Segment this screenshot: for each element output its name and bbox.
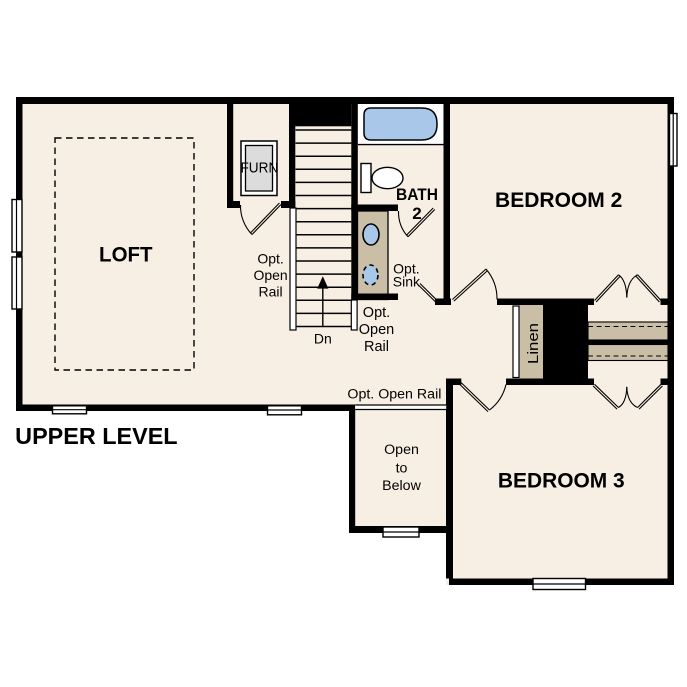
svg-text:Open: Open [253,267,287,283]
svg-text:Opt. Open Rail: Opt. Open Rail [347,387,441,402]
svg-text:BEDROOM 3: BEDROOM 3 [498,470,625,493]
svg-text:Open: Open [384,442,419,458]
svg-text:Linen: Linen [525,323,542,364]
svg-text:LOFT: LOFT [99,243,153,266]
svg-text:BATH: BATH [396,185,438,204]
svg-text:Rail: Rail [259,283,283,299]
svg-text:to: to [396,460,408,476]
svg-text:FURN: FURN [241,161,279,177]
svg-text:Dn: Dn [314,330,332,346]
svg-text:Open: Open [359,322,394,338]
svg-text:Rail: Rail [364,339,389,355]
svg-text:BEDROOM 2: BEDROOM 2 [495,189,622,212]
svg-text:UPPER LEVEL: UPPER LEVEL [15,423,177,449]
svg-text:Opt.: Opt. [257,251,283,267]
svg-text:Sink: Sink [393,274,421,290]
svg-text:2: 2 [412,204,421,223]
svg-text:Opt.: Opt. [363,305,390,321]
svg-text:Below: Below [382,478,421,494]
